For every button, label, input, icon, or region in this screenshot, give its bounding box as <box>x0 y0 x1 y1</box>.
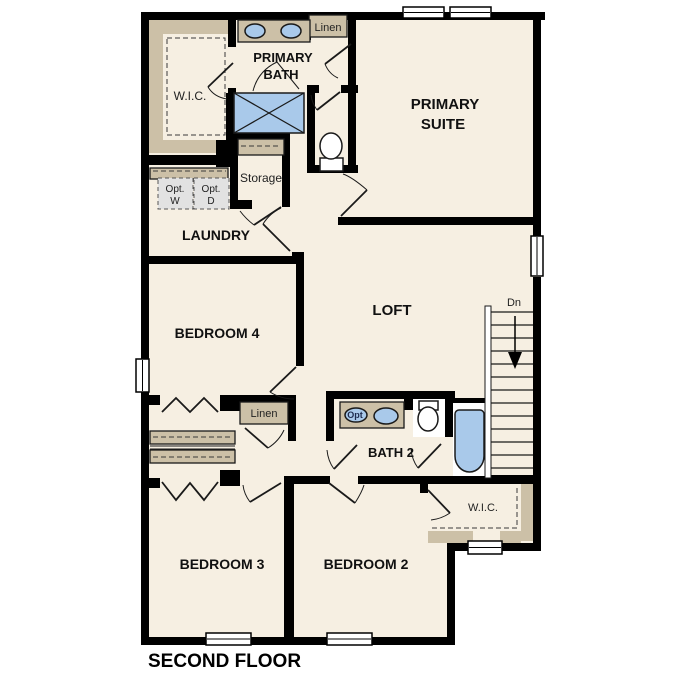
label-wic-top: W.I.C. <box>174 89 207 103</box>
label-opt-d-2: D <box>207 196 214 207</box>
label-opt-sink: Opt <box>347 410 363 420</box>
label-loft: LOFT <box>372 302 411 319</box>
label-stairs-down: Dn <box>507 297 521 309</box>
wic2-wall-right <box>521 484 533 541</box>
label-opt-w-1: Opt. <box>166 184 185 195</box>
floor-plan-title: SECOND FLOOR <box>148 651 301 672</box>
label-wic-bottom: W.I.C. <box>468 502 498 514</box>
wic1-wall-bottom <box>150 140 216 153</box>
label-primary-bath-2: BATH <box>263 67 298 82</box>
label-bath2: BATH 2 <box>368 445 414 460</box>
label-primary-suite-1: PRIMARY <box>411 96 480 113</box>
label-primary-suite-2: SUITE <box>421 116 465 133</box>
toilet-primary-base <box>320 158 343 171</box>
label-bedroom3: BEDROOM 3 <box>180 556 265 572</box>
label-linen-mid: Linen <box>251 408 278 420</box>
label-opt-d-1: Opt. <box>202 184 221 195</box>
bath2-sink <box>374 408 398 424</box>
sink-right <box>281 24 301 38</box>
label-primary-bath-1: PRIMARY <box>253 50 313 65</box>
toilet2-bowl <box>418 407 438 431</box>
wic1-wall-top <box>149 20 228 34</box>
wic1-wall-left <box>149 20 163 153</box>
toilet-primary-bowl <box>320 133 342 159</box>
label-storage: Storage <box>240 171 282 185</box>
sink-left <box>245 24 265 38</box>
wic2-wall-bottom-b <box>500 531 521 543</box>
bathtub <box>455 410 484 472</box>
floorplan-canvas: PRIMARY BATH PRIMARY SUITE W.I.C. Linen … <box>0 0 687 687</box>
label-linen-top: Linen <box>315 22 342 34</box>
label-opt-w-2: W <box>170 196 180 207</box>
label-bedroom4: BEDROOM 4 <box>175 325 260 341</box>
storage-shelf <box>238 139 284 155</box>
wic2-wall-bottom-a <box>428 531 473 543</box>
laundry-counter <box>150 168 228 179</box>
floorplan-svg: PRIMARY BATH PRIMARY SUITE W.I.C. Linen … <box>0 0 687 687</box>
stair-rail <box>485 306 491 478</box>
label-laundry: LAUNDRY <box>182 227 251 243</box>
label-bedroom2: BEDROOM 2 <box>324 556 409 572</box>
